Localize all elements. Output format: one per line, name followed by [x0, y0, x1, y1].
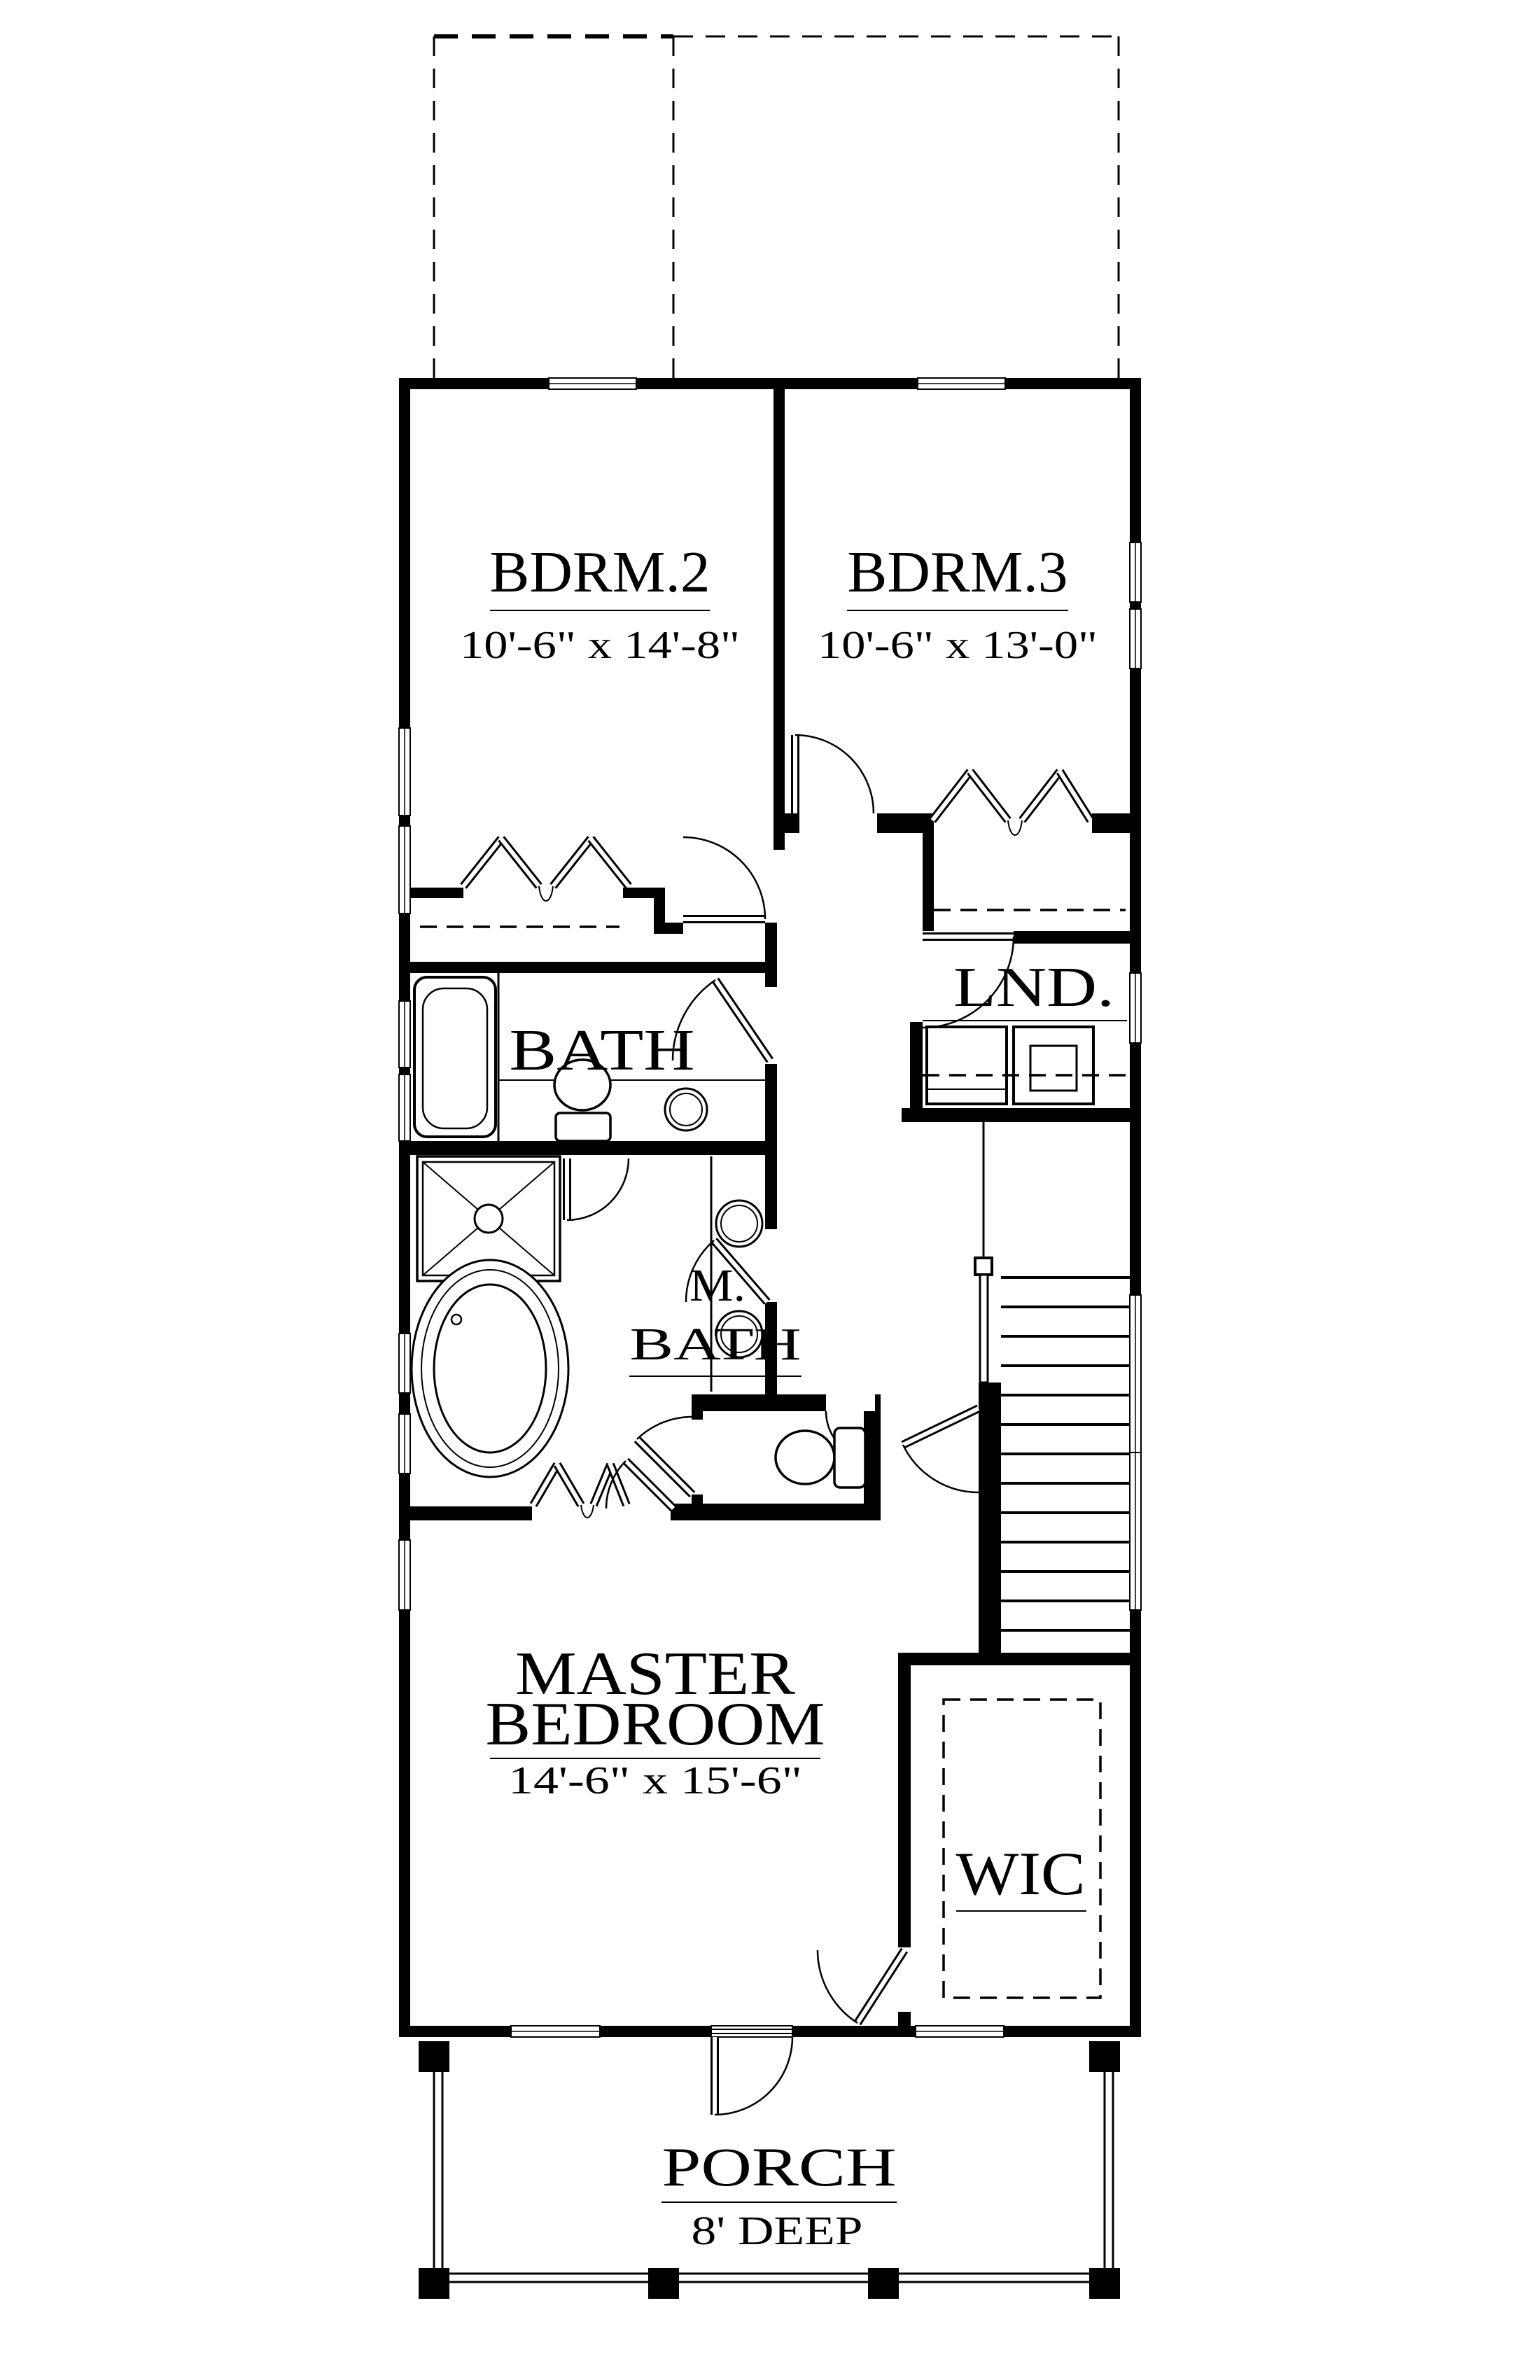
wall-laundry-left	[910, 1022, 923, 1122]
bdrm2-label: BDRM.2	[490, 540, 710, 605]
mbath-label-line1: M.	[689, 1260, 745, 1311]
bathtub-basin	[423, 988, 487, 1128]
porch-post-bottom-midright	[868, 2268, 899, 2299]
mbath-bifold-doors	[533, 1464, 626, 1518]
wall-wic-top	[898, 1653, 1141, 1665]
porch-rail-bottom	[442, 2274, 1096, 2282]
porch-post-top-left	[419, 2041, 449, 2072]
wc-toilet-tank	[834, 1428, 865, 1487]
washer	[927, 1027, 1007, 1104]
shower-door	[567, 1158, 629, 1220]
bdrm3-label: BDRM.3	[848, 540, 1068, 605]
stair-hall-door	[903, 1408, 979, 1492]
stair-treads	[1001, 1277, 1130, 1630]
bath-label: BATH	[510, 1018, 695, 1083]
exterior-wall-top	[399, 378, 1141, 389]
porch-label: PORCH	[662, 2136, 897, 2197]
porch-dims: 8' DEEP	[692, 2208, 863, 2253]
porch-rail-right	[1105, 2066, 1113, 2277]
wall-bdrm3-closet-left	[923, 813, 934, 931]
wall-hall-b	[765, 923, 777, 934]
laundry-label: LND.	[953, 957, 1114, 1018]
bdrm3-door	[795, 735, 874, 813]
wall-wc-left-jamb-top	[692, 1411, 703, 1420]
mbath-sink-1-basin	[721, 1205, 757, 1242]
porch-post-bottom-right	[1089, 2268, 1120, 2299]
wic-label: WIC	[956, 1840, 1086, 1908]
wall-wic-left-jamb	[898, 2012, 911, 2026]
wall-wc-left-jamb-bottom	[692, 1494, 703, 1504]
bdrm3-dims: 10'-6" x 13'-0"	[818, 624, 1098, 667]
bath-sink-basin	[670, 1093, 702, 1126]
shower-drain	[475, 1205, 503, 1233]
porch-door	[711, 2026, 792, 2115]
wall-bdrm2-closet-right	[654, 888, 665, 934]
wall-bath-right-b	[765, 1064, 777, 1229]
wall-bdrm3-bottom-a	[773, 813, 799, 833]
bdrm2-closet-bifold-doors	[463, 839, 629, 901]
wic-door	[818, 1950, 904, 2023]
soaking-tub-basin	[434, 1284, 546, 1452]
stair-half-wall	[980, 1275, 988, 1382]
porch-rail-left	[434, 2066, 442, 2277]
porch-post-bottom-left	[419, 2268, 449, 2299]
wall-laundry-top	[1014, 931, 1130, 944]
wall-bath-top	[410, 962, 777, 973]
wall-wic-left	[898, 1665, 911, 1947]
wall-wc-top	[692, 1394, 826, 1411]
soaking-tub-faucet	[451, 1315, 461, 1324]
mbath-label-line2: BATH	[630, 1319, 801, 1370]
wc-toilet-bowl	[776, 1431, 834, 1484]
porch-post-top-right	[1089, 2041, 1120, 2072]
bath-toilet-tank	[556, 1113, 610, 1141]
wall-bdrm3-bottom-c	[1092, 813, 1130, 833]
stair-newel-post	[975, 1258, 992, 1275]
doors	[567, 735, 1014, 2115]
wall-laundry-bottom	[902, 1108, 1130, 1122]
bdrm2-dims: 10'-6" x 14'-8"	[460, 624, 740, 667]
wall-wc-top-jamb	[875, 1394, 881, 1411]
wall-bdrm2-closet-stub-left	[410, 888, 463, 898]
laundry-appliances	[923, 1021, 1127, 1104]
roof-outline	[434, 36, 1119, 378]
wall-bdrm-divider	[773, 389, 785, 850]
bdrm2-door	[683, 837, 765, 919]
floor-plan: BDRM.2 10'-6" x 14'-8" BDRM.3 10'-6" x 1…	[0, 0, 1540, 2380]
porch-post-bottom-midleft	[648, 2268, 679, 2299]
wall-mbath-bottom	[410, 1506, 532, 1520]
dryer-door	[1030, 1046, 1077, 1091]
wall-bath-bottom	[410, 1141, 777, 1155]
master-bedroom-label-line2: BEDROOM	[486, 1690, 825, 1758]
wall-stairs	[979, 1382, 1001, 1653]
master-bedroom-dims: 14'-6" x 15'-6"	[508, 1759, 802, 1802]
exterior-wall-left	[399, 378, 410, 2037]
wall-bath-right-a	[765, 934, 777, 987]
wall-wc-bottom	[671, 1504, 881, 1520]
bdrm3-closet-bifold-doors	[932, 771, 1091, 835]
